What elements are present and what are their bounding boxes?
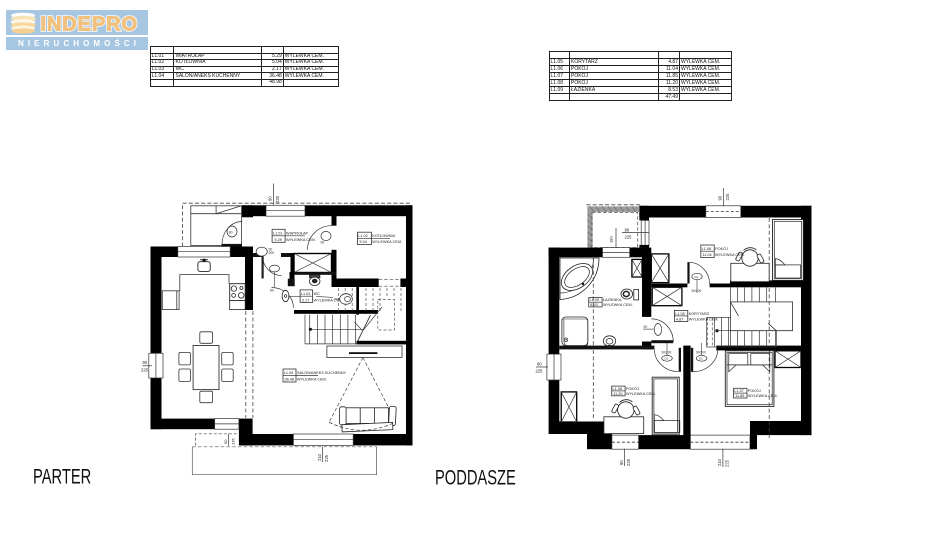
svg-text:WC: WC [314,292,321,296]
svg-text:90: 90 [625,228,630,233]
svg-text:WYLEWKA CEM.: WYLEWKA CEM. [689,317,719,321]
svg-text:WIATROŁAP: WIATROŁAP [286,231,309,235]
svg-text:225: 225 [536,369,544,374]
svg-text:5.04: 5.04 [360,240,367,244]
svg-text:2.17: 2.17 [302,298,309,302]
svg-text:ŁAZIENKA: ŁAZIENKA [603,298,622,302]
svg-text:4.87: 4.87 [676,317,683,321]
svg-text:11.85: 11.85 [735,394,744,398]
svg-text:90: 90 [644,325,648,329]
svg-text:WYLEWKA CEM.: WYLEWKA CEM. [372,240,402,244]
svg-text:90: 90 [143,360,148,365]
svg-text:L1.07: L1.07 [734,389,744,393]
svg-text:200: 200 [269,251,275,255]
svg-text:L1.09: L1.09 [590,298,600,302]
svg-text:225: 225 [626,458,631,466]
svg-text:80: 80 [270,289,274,293]
svg-text:D1: D1 [665,357,669,361]
svg-text:POKÓJ: POKÓJ [715,246,728,251]
svg-text:90: 90 [223,439,228,444]
svg-text:225: 225 [625,235,633,240]
svg-text:L1.04: L1.04 [284,371,294,375]
svg-text:WYLEWKA CEM.: WYLEWKA CEM. [715,253,745,257]
svg-text:KORYTARZ: KORYTARZ [689,312,710,316]
svg-text:90/200: 90/200 [692,289,702,293]
svg-text:WYLEWKA CEM.: WYLEWKA CEM. [603,303,633,307]
svg-text:L1.08: L1.08 [613,387,623,391]
svg-text:11.04: 11.04 [702,253,711,257]
svg-text:POKÓJ: POKÓJ [626,386,639,391]
svg-text:D1: D1 [699,357,703,361]
svg-text:8.53: 8.53 [590,303,597,307]
svg-text:90: 90 [718,195,723,200]
svg-text:5.29: 5.29 [275,238,282,242]
svg-text:90: 90 [229,231,233,235]
svg-text:L1.06: L1.06 [702,247,712,251]
svg-text:WYLEWKA CEM.: WYLEWKA CEM. [748,394,778,398]
svg-text:90/200: 90/200 [696,351,706,355]
svg-text:L1.05: L1.05 [675,312,685,316]
svg-text:225: 225 [275,195,280,203]
svg-text:90: 90 [619,460,624,465]
svg-text:L1.03: L1.03 [301,292,311,296]
svg-text:225: 225 [725,459,730,467]
svg-text:225: 225 [324,454,329,462]
svg-text:SALON/ANEKS KUCHENNY: SALON/ANEKS KUCHENNY [297,371,347,375]
svg-text:90: 90 [268,196,273,201]
svg-text:210: 210 [717,458,722,466]
svg-text:180: 180 [609,236,614,243]
svg-text:135: 135 [231,438,236,445]
svg-text:225: 225 [141,367,149,372]
svg-text:90: 90 [537,362,542,367]
svg-text:L1.01: L1.01 [273,231,283,235]
svg-text:L1.02: L1.02 [358,234,368,238]
svg-text:36.48: 36.48 [285,378,295,382]
svg-text:225: 225 [725,193,730,201]
svg-text:11.20: 11.20 [613,392,622,396]
svg-text:KOTŁOWNIA: KOTŁOWNIA [372,234,395,238]
svg-text:POKÓJ: POKÓJ [748,388,761,393]
svg-text:D1: D1 [695,275,699,279]
svg-text:WYLEWKA CEM.: WYLEWKA CEM. [297,378,327,382]
svg-text:WYLEWKA CEM.: WYLEWKA CEM. [286,238,316,242]
svg-text:90/200: 90/200 [662,351,672,355]
svg-text:210: 210 [317,453,322,461]
svg-text:WYLEWKA CEM.: WYLEWKA CEM. [626,392,656,396]
svg-text:90: 90 [321,241,325,245]
